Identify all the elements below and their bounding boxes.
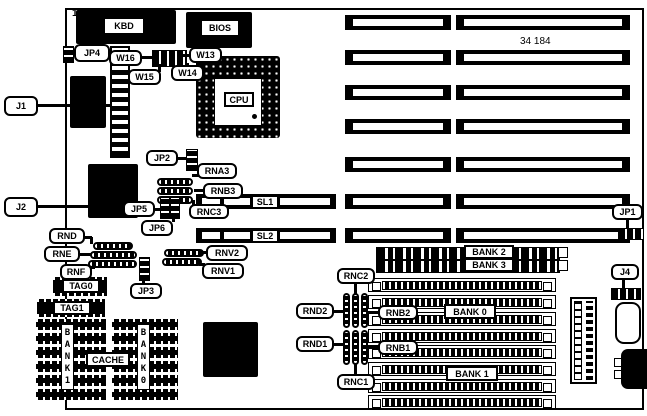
jp1-callout: JP1 <box>612 204 643 220</box>
jp5-pointer <box>155 208 161 211</box>
tag1-label: TAG1 <box>53 301 91 315</box>
slot-stripe <box>464 198 622 205</box>
j4-pointer <box>622 280 625 289</box>
cache-bank0-column-label: BANK0 <box>137 324 150 390</box>
cache-label: CACHE <box>86 352 130 367</box>
bank2-clip <box>558 247 568 258</box>
motherboard-diagram: 11 KBD BIOS J1 J2 JP4 W16 W13 W15 W14 CP… <box>0 0 647 416</box>
slot-stripe <box>353 89 443 96</box>
jp6-pointer <box>172 216 175 222</box>
rna3-network <box>157 178 193 186</box>
jp2-pointer <box>178 157 186 160</box>
slot-stripe <box>353 54 443 61</box>
rne-pointer <box>79 253 91 256</box>
w14-callout: W14 <box>171 65 204 81</box>
slot-stripe <box>353 198 443 205</box>
bank3-clip <box>558 260 568 271</box>
power-connector-pins-right <box>586 301 593 380</box>
bank3-label: BANK 3 <box>464 258 514 272</box>
slot-stripe <box>353 161 443 168</box>
j2-callout: J2 <box>4 197 38 217</box>
slot-stripe <box>353 123 443 130</box>
j4-jumper <box>611 288 641 300</box>
w15-callout: W15 <box>128 69 161 85</box>
rnd1-callout: RND1 <box>296 336 334 352</box>
rnd2-pointer <box>334 310 344 313</box>
w16-pointer <box>141 56 153 59</box>
w13-callout: W13 <box>189 47 222 63</box>
rne-network <box>90 251 137 259</box>
sl2-stripe <box>202 232 220 239</box>
rnc2-pointer <box>354 284 357 294</box>
w16-callout: W16 <box>109 50 142 66</box>
j4-callout: J4 <box>611 264 639 280</box>
battery <box>615 302 641 344</box>
j2-pointer <box>38 205 96 208</box>
bank0-label: BANK 0 <box>444 304 496 319</box>
sl1-stripe <box>224 198 250 205</box>
cache-chip <box>36 389 106 400</box>
rnb3-callout: RNB3 <box>203 183 243 199</box>
rnc1-callout: RNC1 <box>337 374 375 390</box>
rnc3-callout: RNC3 <box>189 204 229 219</box>
sl1-label: SL1 <box>252 196 278 208</box>
slot-stripe <box>464 123 622 130</box>
rnd-callout: RND <box>49 228 85 244</box>
slot-stripe <box>464 19 622 26</box>
sl2-stripe <box>280 232 330 239</box>
rnv1-network <box>162 258 202 266</box>
rna3-callout: RNA3 <box>197 163 237 179</box>
sl2-label: SL2 <box>252 230 278 242</box>
simm-socket <box>368 278 556 292</box>
simm-socket <box>368 379 556 393</box>
cpu-label: CPU <box>224 92 254 107</box>
board-id: 34 184 <box>520 36 551 47</box>
keyboard-din-tab <box>614 370 622 379</box>
rnv2-network <box>164 249 204 257</box>
jp2-callout: JP2 <box>146 150 178 166</box>
kbd-chip-label: KBD <box>104 18 144 34</box>
tag0-label: TAG0 <box>62 279 100 293</box>
cache-chip <box>112 389 178 400</box>
rnb2-callout: RNB2 <box>378 305 418 320</box>
rnd1-pointer <box>334 343 344 346</box>
rnf-network <box>88 260 137 268</box>
rnd-pointer <box>90 237 93 244</box>
cpu-pin1-dot <box>252 114 257 119</box>
jp6-callout: JP6 <box>141 220 173 236</box>
jp4-callout: JP4 <box>74 44 110 62</box>
power-connector-pins-left <box>574 301 582 380</box>
slot-stripe <box>353 19 443 26</box>
sl1-stripe <box>280 198 330 205</box>
rnd2-callout: RND2 <box>296 303 334 319</box>
sl2-stripe <box>224 232 250 239</box>
chipset-qfp-bottom <box>203 322 258 377</box>
rn-network-vertical <box>343 330 350 365</box>
bios-chip-label: BIOS <box>201 20 239 36</box>
pin1-label: 11 <box>72 8 83 19</box>
slot-stripe <box>464 161 622 168</box>
j1-callout: J1 <box>4 96 38 116</box>
slot-stripe <box>464 89 622 96</box>
slot-stripe <box>464 54 622 61</box>
rn-network-vertical <box>352 293 359 328</box>
cache-bank1-column-label: BANK1 <box>61 324 74 390</box>
jp5-jumper <box>160 197 170 219</box>
rne-callout: RNE <box>44 246 80 262</box>
rn-network-vertical <box>352 330 359 365</box>
rn-network-vertical <box>343 293 350 328</box>
jp1-jumper <box>618 228 644 240</box>
rnv2-callout: RNV2 <box>206 245 248 261</box>
jp4-jumper <box>63 46 74 63</box>
jp1-pointer <box>626 220 629 229</box>
rnb1-callout: RNB1 <box>378 340 418 355</box>
slot-stripe <box>353 232 443 239</box>
rnc2-callout: RNC2 <box>337 268 375 284</box>
keyboard-din-connector <box>621 349 647 389</box>
bank2-label: BANK 2 <box>464 245 514 259</box>
slot-stripe <box>464 232 622 239</box>
rnv1-callout: RNV1 <box>202 263 244 279</box>
j1-pointer <box>38 104 110 107</box>
simm-socket <box>368 395 556 409</box>
rnf-callout: RNF <box>60 264 92 280</box>
keyboard-din-tab <box>614 358 622 367</box>
chip-upper-left <box>70 76 106 128</box>
rnd-network <box>93 242 133 250</box>
jp5-callout: JP5 <box>123 201 155 217</box>
bank1-label: BANK 1 <box>446 366 498 381</box>
rnb3-network <box>157 187 193 195</box>
jp3-callout: JP3 <box>130 283 162 299</box>
